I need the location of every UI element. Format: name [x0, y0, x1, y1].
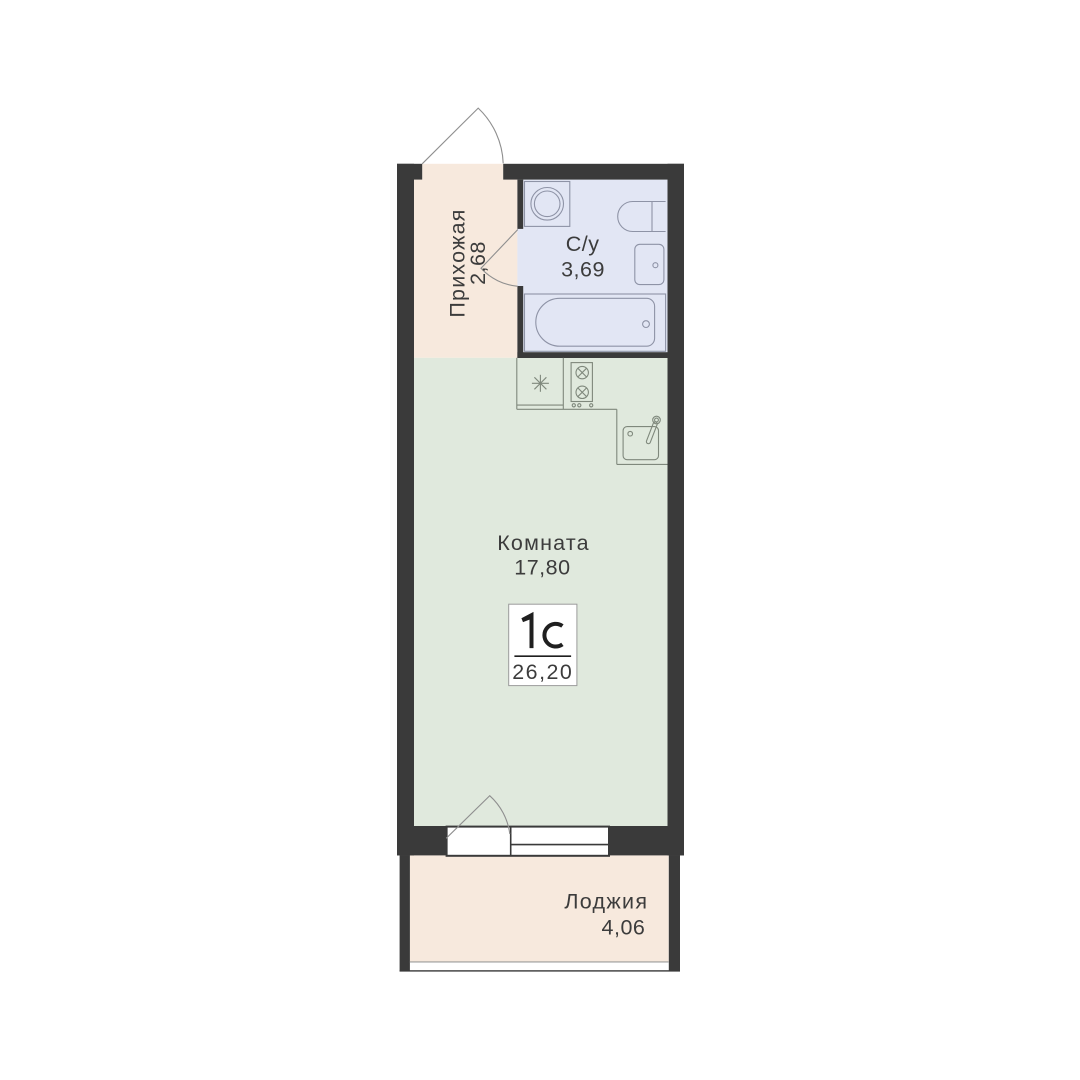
- svg-text:2,68: 2,68: [466, 241, 490, 285]
- svg-text:Комната: Комната: [497, 531, 590, 555]
- svg-text:3,69: 3,69: [561, 257, 605, 281]
- svg-text:17,80: 17,80: [514, 556, 570, 580]
- svg-text:4,06: 4,06: [602, 915, 646, 939]
- svg-text:26,20: 26,20: [512, 660, 573, 684]
- svg-text:Лоджия: Лоджия: [564, 890, 648, 914]
- svg-text:С/у: С/у: [566, 232, 600, 256]
